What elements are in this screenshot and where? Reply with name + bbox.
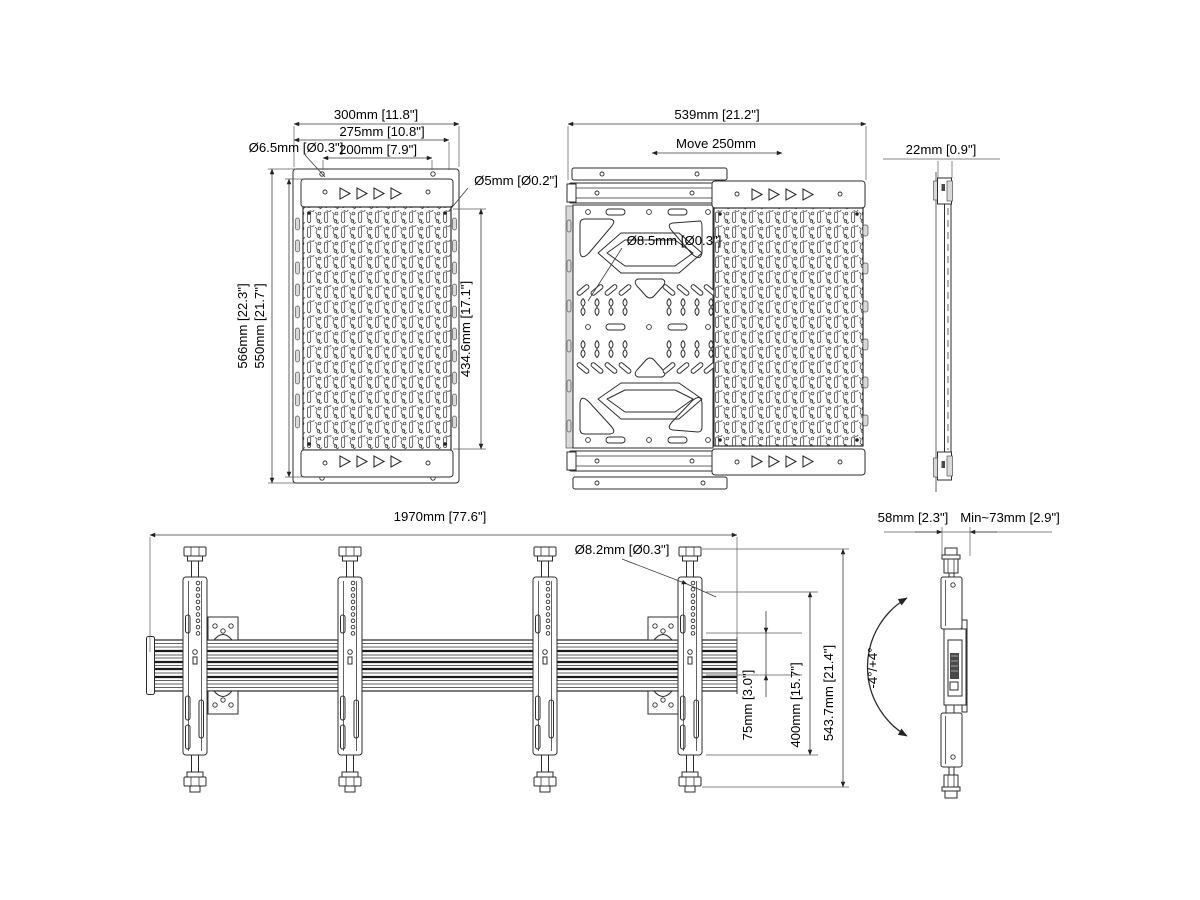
dim-length-1970mm: 1970mm [77.6"] xyxy=(394,509,487,524)
sliding-plate-front xyxy=(301,179,453,477)
perforated-mesh-panel xyxy=(303,207,451,450)
dim-height-566mm: 566mm [22.3"] xyxy=(235,283,250,368)
sliding-plate-extended xyxy=(712,181,868,475)
tv-bracket-4 xyxy=(678,547,702,792)
dim-height-550mm: 550mm [21.7"] xyxy=(252,283,267,368)
label-move-250mm: Move 250mm xyxy=(676,136,756,151)
dim-width-275mm: 275mm [10.8"] xyxy=(339,124,424,139)
dim-height-434mm: 434.6mm [17.1"] xyxy=(458,281,473,377)
bracket-side-profile xyxy=(941,548,967,798)
view-front-rail-assembly: 1970mm [77.6"] Ø8.2mm [Ø0.3"] 543.7mm [2… xyxy=(147,509,850,792)
view-front-plate-closed: 300mm [11.8"] 275mm [10.8"] 200mm [7.9"]… xyxy=(235,107,558,483)
dim-width-539mm: 539mm [21.2"] xyxy=(674,107,759,122)
mounting-rail xyxy=(147,637,738,695)
dim-depth-58mm: 58mm [2.3"] xyxy=(878,510,949,525)
callout-hole-8-5mm: Ø8.5mm [Ø0.3"] xyxy=(627,233,722,248)
label-tilt-angle: -4°/+4° xyxy=(865,648,880,689)
tv-bracket-3 xyxy=(533,547,557,792)
view-side-wall-plate: 22mm [0.9"] xyxy=(883,142,1000,492)
dim-span-75mm: 75mm [3.0"] xyxy=(740,670,755,741)
wall-mount-dimension-drawing: 300mm [11.8"] 275mm [10.8"] 200mm [7.9"]… xyxy=(0,0,1200,900)
dim-depth-22mm: 22mm [0.9"] xyxy=(906,142,977,157)
tv-bracket-1 xyxy=(183,547,207,792)
dim-width-200mm: 200mm [7.9"] xyxy=(339,142,417,157)
technical-drawing-page: 300mm [11.8"] 275mm [10.8"] 200mm [7.9"]… xyxy=(0,0,1200,900)
view-side-rail-bracket: 58mm [2.3"] Min~73mm [2.9"] xyxy=(865,510,1060,798)
view-front-plate-extended: 539mm [21.2"] Move 250mm Ø8.5mm [Ø0.3"] xyxy=(566,107,868,489)
dim-height-543mm: 543.7mm [21.4"] xyxy=(821,645,836,741)
dim-width-300mm: 300mm [11.8"] xyxy=(334,107,418,122)
wall-rails xyxy=(567,168,727,203)
callout-hole-8-2mm: Ø8.2mm [Ø0.3"] xyxy=(575,542,670,557)
wall-rails-bottom xyxy=(567,451,727,489)
dim-depth-min-73mm: Min~73mm [2.9"] xyxy=(960,510,1060,525)
perforated-mesh-panel-extended xyxy=(714,208,863,446)
callout-hole-5mm: Ø5mm [Ø0.2"] xyxy=(474,173,558,188)
tv-bracket-2 xyxy=(338,547,362,792)
callout-hole-6-5mm: Ø6.5mm [Ø0.3"] xyxy=(249,140,344,155)
